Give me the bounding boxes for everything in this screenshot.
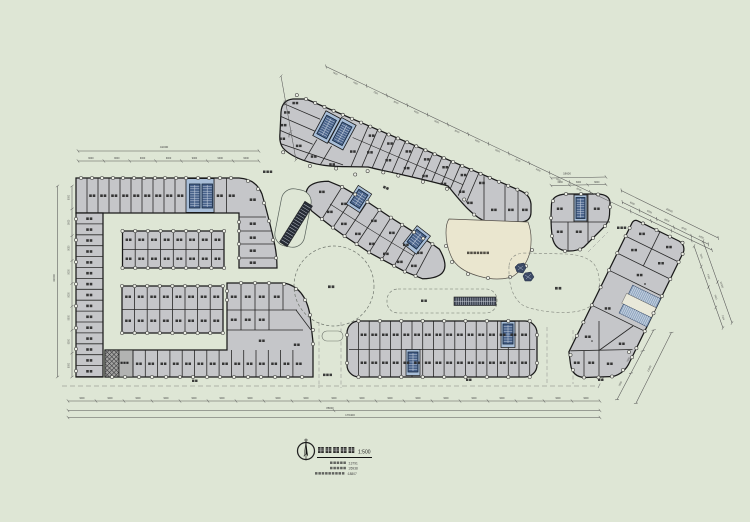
svg-text:9000: 9000 [79, 398, 85, 400]
svg-text:9000: 9000 [331, 398, 337, 400]
svg-text:9000: 9000 [68, 292, 70, 298]
svg-text:9000: 9000 [68, 338, 70, 344]
svg-text:18600: 18600 [563, 172, 571, 176]
svg-text:9000: 9000 [359, 398, 365, 400]
svg-text:9000: 9000 [555, 398, 561, 400]
svg-text:1:500: 1:500 [358, 450, 371, 456]
svg-text:6000: 6000 [594, 182, 600, 184]
svg-text:9000: 9000 [68, 315, 70, 321]
svg-text:9000: 9000 [583, 398, 589, 400]
svg-text:6000: 6000 [558, 182, 564, 184]
svg-text:9000: 9000 [527, 398, 533, 400]
svg-text:9000: 9000 [68, 269, 70, 275]
svg-text:9000: 9000 [303, 398, 309, 400]
svg-text:9000: 9000 [191, 398, 197, 400]
svg-text:9000: 9000 [499, 398, 505, 400]
svg-text:9000: 9000 [243, 157, 249, 160]
svg-text:9000: 9000 [163, 398, 169, 400]
svg-text:88000: 88000 [326, 406, 334, 410]
svg-text:9000: 9000 [275, 398, 281, 400]
svg-text::18807: :18807 [347, 472, 357, 476]
svg-text:9000: 9000 [107, 398, 113, 400]
svg-text:9000: 9000 [166, 157, 172, 160]
svg-text:9000: 9000 [68, 362, 70, 368]
svg-text:6000: 6000 [576, 182, 582, 184]
svg-text:41000: 41000 [160, 145, 169, 149]
svg-text:9000: 9000 [88, 157, 94, 160]
svg-text:9000: 9000 [135, 398, 141, 400]
svg-text:9000: 9000 [68, 219, 70, 225]
svg-text:9000: 9000 [247, 398, 253, 400]
svg-text:9000: 9000 [68, 245, 70, 251]
svg-text::26938: :26938 [348, 467, 358, 471]
svg-text:9000: 9000 [471, 398, 477, 400]
svg-text::13791: :13791 [348, 461, 358, 465]
svg-text:9000: 9000 [387, 398, 393, 400]
svg-text:9000: 9000 [219, 398, 225, 400]
svg-text:9000: 9000 [192, 157, 198, 160]
svg-text:9000: 9000 [443, 398, 449, 400]
svg-text:176400: 176400 [345, 413, 355, 417]
svg-text:9000: 9000 [68, 194, 70, 200]
svg-text:9000: 9000 [218, 157, 224, 160]
svg-text:9000: 9000 [140, 157, 146, 160]
svg-text:41000: 41000 [52, 274, 56, 282]
svg-text:9000: 9000 [114, 157, 120, 160]
svg-text:9000: 9000 [415, 398, 421, 400]
